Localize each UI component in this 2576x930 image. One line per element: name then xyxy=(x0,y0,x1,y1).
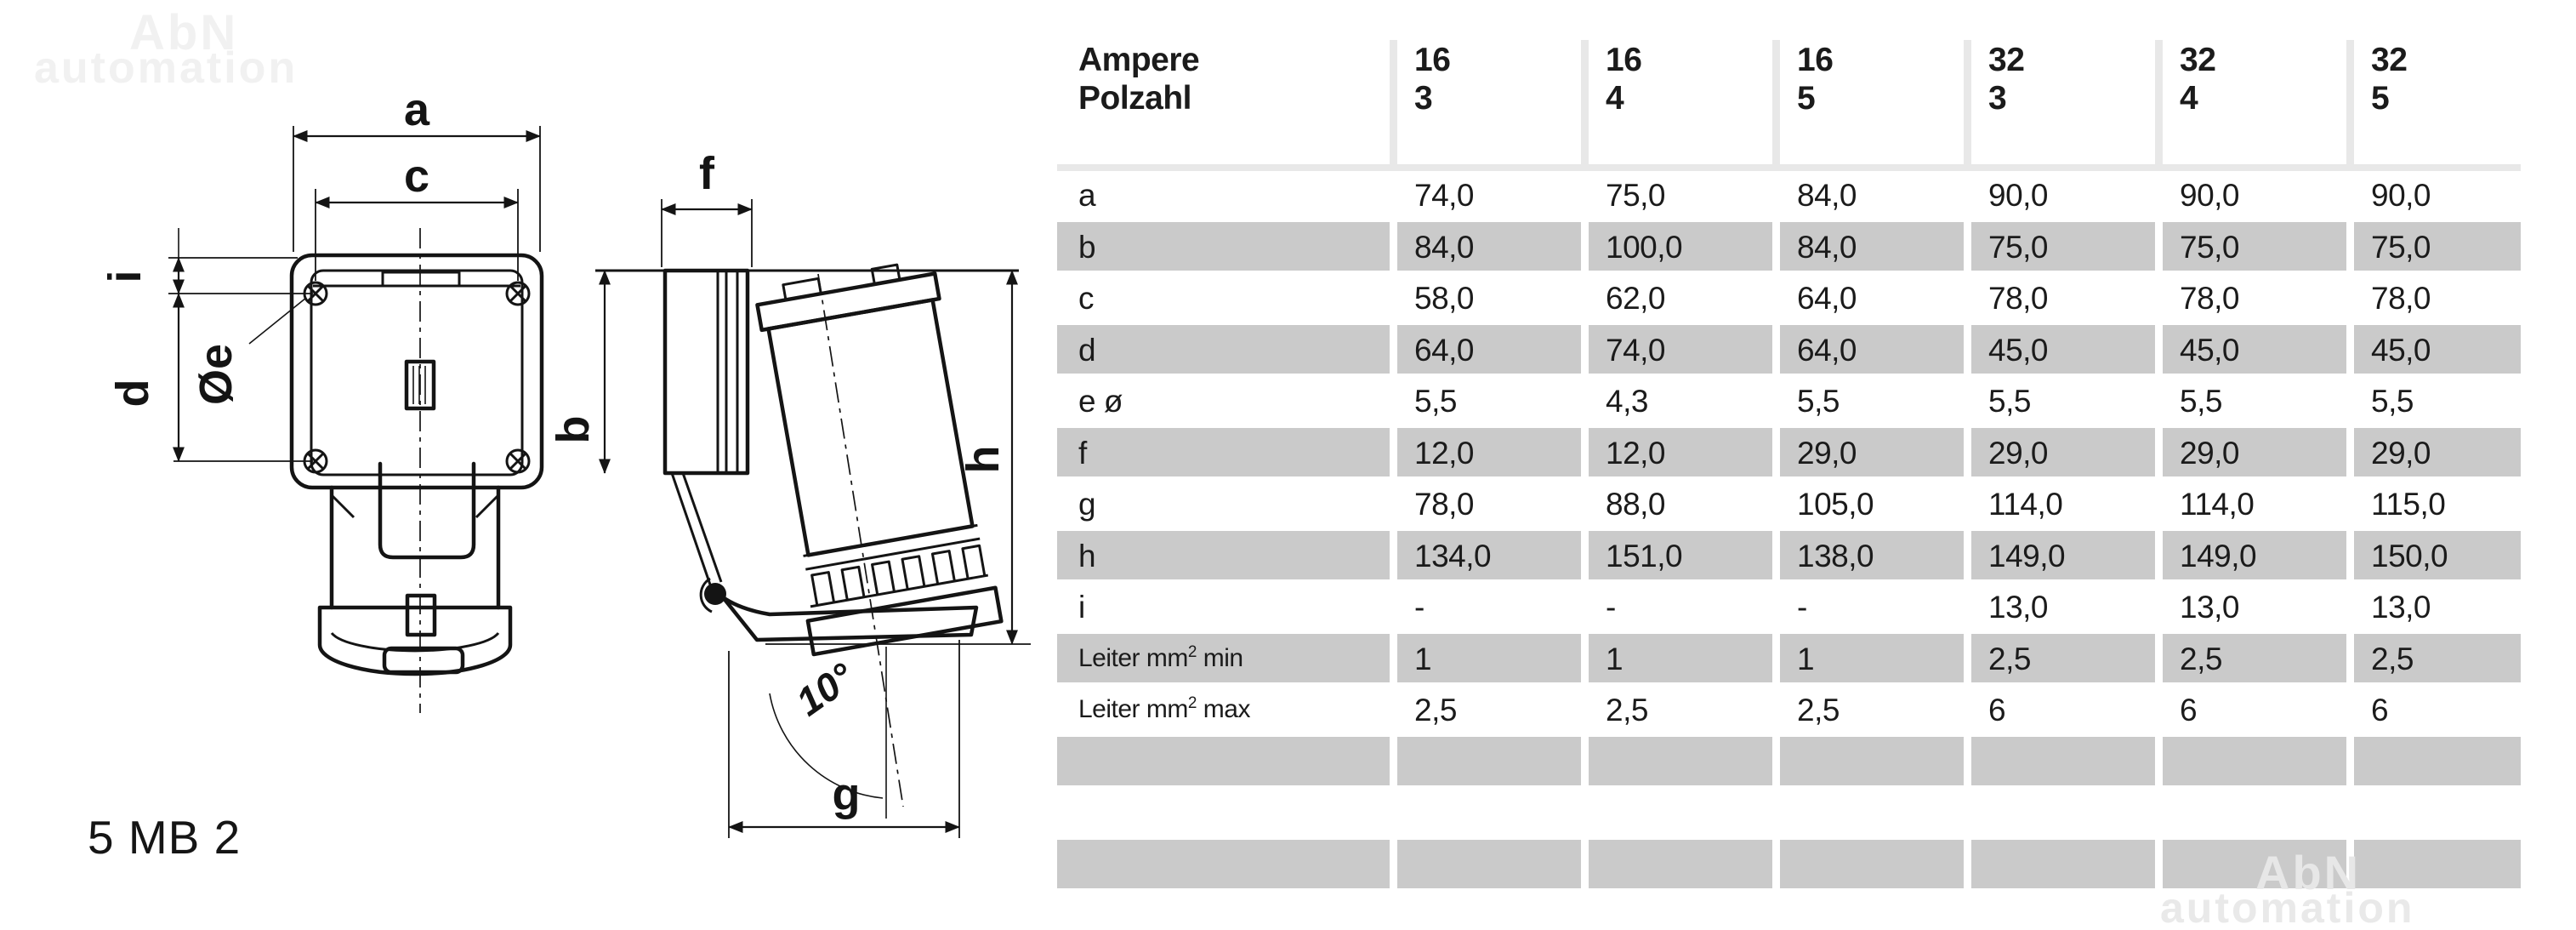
cell: 78,0 xyxy=(2163,273,2346,325)
cell: 45,0 xyxy=(1971,325,2155,377)
angle-label: 10° xyxy=(788,653,862,724)
side-socket-body xyxy=(769,300,973,555)
cell xyxy=(1057,737,1390,789)
side-hinge-strap xyxy=(672,473,721,587)
cell: 78,0 xyxy=(2354,273,2521,325)
cell xyxy=(1971,737,2155,789)
column-separator-line xyxy=(2155,40,2163,164)
dim-b-label: b xyxy=(548,416,599,444)
cell xyxy=(1589,840,1772,892)
cell: 150,0 xyxy=(2354,531,2521,583)
cell: 151,0 xyxy=(1589,531,1772,583)
cell: 64,0 xyxy=(1780,325,1964,377)
front-cap-latch xyxy=(407,596,435,635)
cell xyxy=(1057,840,1390,892)
cell: 2,5 xyxy=(1589,685,1772,737)
dim-e-diameter-label: Øe xyxy=(190,344,242,405)
cell: 114,0 xyxy=(2163,479,2346,531)
cell: 100,0 xyxy=(1589,222,1772,274)
dim-i-label: i xyxy=(100,270,151,282)
cell: 2,5 xyxy=(1397,685,1581,737)
cell xyxy=(1971,840,2155,892)
cell: 62,0 xyxy=(1589,273,1772,325)
technical-drawing: a c i d Øe xyxy=(0,0,1057,930)
cell: - xyxy=(1397,582,1581,634)
cell: 90,0 xyxy=(1971,170,2155,222)
header-polzahl-value: 4 xyxy=(2180,79,2346,117)
leiter-label-text: Leiter mm xyxy=(1078,644,1188,672)
cell xyxy=(1397,737,1581,789)
header-ampere-value: 16 xyxy=(1797,41,1964,79)
cell: 74,0 xyxy=(1397,170,1581,222)
dim-d-label: d xyxy=(107,379,158,408)
cell: - xyxy=(1589,582,1772,634)
cell: 5,5 xyxy=(1971,376,2155,428)
cell xyxy=(1397,788,1581,840)
column-separator-line xyxy=(1390,40,1397,164)
header-polzahl-value: 5 xyxy=(1797,79,1964,117)
cell xyxy=(1589,788,1772,840)
column-separator-line xyxy=(2346,40,2354,164)
cell xyxy=(2163,788,2346,840)
cell: 75,0 xyxy=(1971,222,2155,274)
cell: 2,5 xyxy=(2163,634,2346,686)
cell: 2,5 xyxy=(1780,685,1964,737)
cell: 29,0 xyxy=(1971,428,2155,480)
cell: 105,0 xyxy=(1780,479,1964,531)
leiter-label-text: Leiter mm xyxy=(1078,695,1188,723)
row-label: i xyxy=(1057,582,1390,634)
front-top-tab xyxy=(383,272,459,286)
header-ampere-label: Ampere xyxy=(1078,41,1390,79)
dim-e-leader-line xyxy=(249,298,306,344)
cell xyxy=(1397,840,1581,892)
cell: 6 xyxy=(1971,685,2155,737)
row-label: d xyxy=(1057,325,1390,377)
side-socket-seams xyxy=(804,525,981,569)
cell: 29,0 xyxy=(1780,428,1964,480)
table-row-c: c 58,0 62,0 64,0 78,0 78,0 78,0 xyxy=(1057,273,2521,325)
header-polzahl-value: 5 xyxy=(2371,79,2521,117)
dim-f-label: f xyxy=(699,148,715,199)
row-label: h xyxy=(1057,531,1390,583)
cell: 78,0 xyxy=(1397,479,1581,531)
cell: 78,0 xyxy=(1971,273,2155,325)
cell: 4,3 xyxy=(1589,376,1772,428)
header-column: 16 3 xyxy=(1397,34,1581,164)
front-keyway-hatch xyxy=(413,366,425,404)
cell: 90,0 xyxy=(2163,170,2346,222)
cell: 1 xyxy=(1397,634,1581,686)
row-label: Leiter mm2 max xyxy=(1057,685,1390,737)
table-row-a: a 74,0 75,0 84,0 90,0 90,0 90,0 xyxy=(1057,170,2521,222)
table-header: Ampere Polzahl 16 3 16 4 16 5 32 3 32 4 xyxy=(1057,34,2521,164)
cell xyxy=(2163,737,2346,789)
table-row-f: f 12,0 12,0 29,0 29,0 29,0 29,0 xyxy=(1057,428,2521,480)
cell: 2,5 xyxy=(1971,634,2155,686)
row-label: b xyxy=(1057,222,1390,274)
header-ampere-value: 32 xyxy=(1988,41,2155,79)
watermark-bottom-right-line2: automation xyxy=(2160,887,2414,929)
cell xyxy=(1589,737,1772,789)
cell: 84,0 xyxy=(1780,170,1964,222)
cell: 29,0 xyxy=(2163,428,2346,480)
dim-c-label: c xyxy=(404,151,429,202)
cell: 45,0 xyxy=(2354,325,2521,377)
cell: 12,0 xyxy=(1397,428,1581,480)
column-separator-line xyxy=(1581,40,1589,164)
table-body: a 74,0 75,0 84,0 90,0 90,0 90,0 b 84,0 1… xyxy=(1057,170,2521,891)
table-row-empty xyxy=(1057,788,2521,840)
cell: 13,0 xyxy=(2163,582,2346,634)
header-column: 16 5 xyxy=(1780,34,1964,164)
header-ampere-value: 16 xyxy=(1606,41,1772,79)
cell xyxy=(1971,788,2155,840)
front-mounting-plate xyxy=(292,255,542,488)
cell xyxy=(1057,788,1390,840)
leiter-label-suffix: max xyxy=(1197,695,1250,723)
table-row-leiter-min: Leiter mm2 min 1 1 1 2,5 2,5 2,5 xyxy=(1057,634,2521,686)
header-ampere-value: 32 xyxy=(2371,41,2521,79)
cell: 1 xyxy=(1589,634,1772,686)
cell: 149,0 xyxy=(2163,531,2346,583)
dim-h-label: h xyxy=(958,446,1009,474)
front-cap-drum xyxy=(320,608,510,674)
cell: 45,0 xyxy=(2163,325,2346,377)
header-ampere-value: 16 xyxy=(1414,41,1581,79)
side-socket-tab2 xyxy=(872,265,900,284)
side-view: f b h xyxy=(548,148,1031,838)
header-polzahl-value: 3 xyxy=(1988,79,2155,117)
side-wall-bracket xyxy=(665,271,748,473)
header-column: 32 4 xyxy=(2163,34,2346,164)
leiter-label-sup: 2 xyxy=(1188,694,1197,712)
column-separator-line xyxy=(1964,40,1971,164)
cell xyxy=(1780,840,1964,892)
part-number: 5 MB 2 xyxy=(88,810,241,864)
table-row-i: i - - - 13,0 13,0 13,0 xyxy=(1057,582,2521,634)
cell xyxy=(2354,840,2521,892)
side-hinge-pin xyxy=(704,583,726,605)
row-label: e ø xyxy=(1057,376,1390,428)
column-separator-line xyxy=(1772,40,1780,164)
side-bracket-ribs xyxy=(718,271,737,473)
screw-bottom-right xyxy=(507,450,529,472)
cell: 84,0 xyxy=(1397,222,1581,274)
front-contact-recess xyxy=(380,464,474,557)
leiter-label-sup: 2 xyxy=(1188,643,1197,661)
cell: 6 xyxy=(2163,685,2346,737)
table-row-leiter-max: Leiter mm2 max 2,5 2,5 2,5 6 6 6 xyxy=(1057,685,2521,737)
header-column: 32 5 xyxy=(2354,34,2521,164)
row-label: Leiter mm2 min xyxy=(1057,634,1390,686)
cell: 138,0 xyxy=(1780,531,1964,583)
table-row-e: e ø 5,5 4,3 5,5 5,5 5,5 5,5 xyxy=(1057,376,2521,428)
cell: 5,5 xyxy=(2163,376,2346,428)
cell: 64,0 xyxy=(1397,325,1581,377)
cell: 12,0 xyxy=(1589,428,1772,480)
header-ampere-value: 32 xyxy=(2180,41,2346,79)
header-column: 32 3 xyxy=(1971,34,2155,164)
cell xyxy=(2354,788,2521,840)
header-polzahl-label: Polzahl xyxy=(1078,79,1390,117)
header-column: 16 4 xyxy=(1589,34,1772,164)
side-socket-tab1 xyxy=(783,278,821,300)
cell: 74,0 xyxy=(1589,325,1772,377)
cell: 84,0 xyxy=(1780,222,1964,274)
header-label-cell: Ampere Polzahl xyxy=(1057,34,1390,164)
table-row-empty xyxy=(1057,737,2521,789)
cell: 13,0 xyxy=(2354,582,2521,634)
cell: - xyxy=(1780,582,1964,634)
cell: 5,5 xyxy=(2354,376,2521,428)
cell xyxy=(1780,737,1964,789)
row-label: c xyxy=(1057,273,1390,325)
cell: 88,0 xyxy=(1589,479,1772,531)
cell: 1 xyxy=(1780,634,1964,686)
cell: 75,0 xyxy=(1589,170,1772,222)
dimension-table: Ampere Polzahl 16 3 16 4 16 5 32 3 32 4 xyxy=(1057,34,2521,899)
table-row-h: h 134,0 151,0 138,0 149,0 149,0 150,0 xyxy=(1057,531,2521,583)
row-label: f xyxy=(1057,428,1390,480)
row-label: a xyxy=(1057,170,1390,222)
cell: 75,0 xyxy=(2354,222,2521,274)
front-view: a c i d Øe xyxy=(100,84,542,713)
cell: 115,0 xyxy=(2354,479,2521,531)
row-label: g xyxy=(1057,479,1390,531)
cell: 90,0 xyxy=(2354,170,2521,222)
front-inner-face xyxy=(311,271,522,475)
side-grip-ring-ribs xyxy=(812,545,985,605)
leiter-label-suffix: min xyxy=(1197,644,1243,672)
cell: 5,5 xyxy=(1780,376,1964,428)
table-row-g: g 78,0 88,0 105,0 114,0 114,0 115,0 xyxy=(1057,479,2521,531)
header-polzahl-value: 3 xyxy=(1414,79,1581,117)
cell: 134,0 xyxy=(1397,531,1581,583)
cell: 5,5 xyxy=(1397,376,1581,428)
dim-a-label: a xyxy=(404,84,430,135)
cell: 13,0 xyxy=(1971,582,2155,634)
cell xyxy=(1780,788,1964,840)
cell xyxy=(2354,737,2521,789)
table-row-d: d 64,0 74,0 64,0 45,0 45,0 45,0 xyxy=(1057,325,2521,377)
cell: 64,0 xyxy=(1780,273,1964,325)
table-row-b: b 84,0 100,0 84,0 75,0 75,0 75,0 xyxy=(1057,222,2521,274)
dim-g-label: g xyxy=(833,769,861,820)
cell: 2,5 xyxy=(2354,634,2521,686)
header-polzahl-value: 4 xyxy=(1606,79,1772,117)
cell: 6 xyxy=(2354,685,2521,737)
cell: 149,0 xyxy=(1971,531,2155,583)
cell: 75,0 xyxy=(2163,222,2346,274)
datasheet-page: AbN automation AbN automation a c i d xyxy=(0,0,2576,930)
cell: 114,0 xyxy=(1971,479,2155,531)
cell: 58,0 xyxy=(1397,273,1581,325)
cell: 29,0 xyxy=(2354,428,2521,480)
